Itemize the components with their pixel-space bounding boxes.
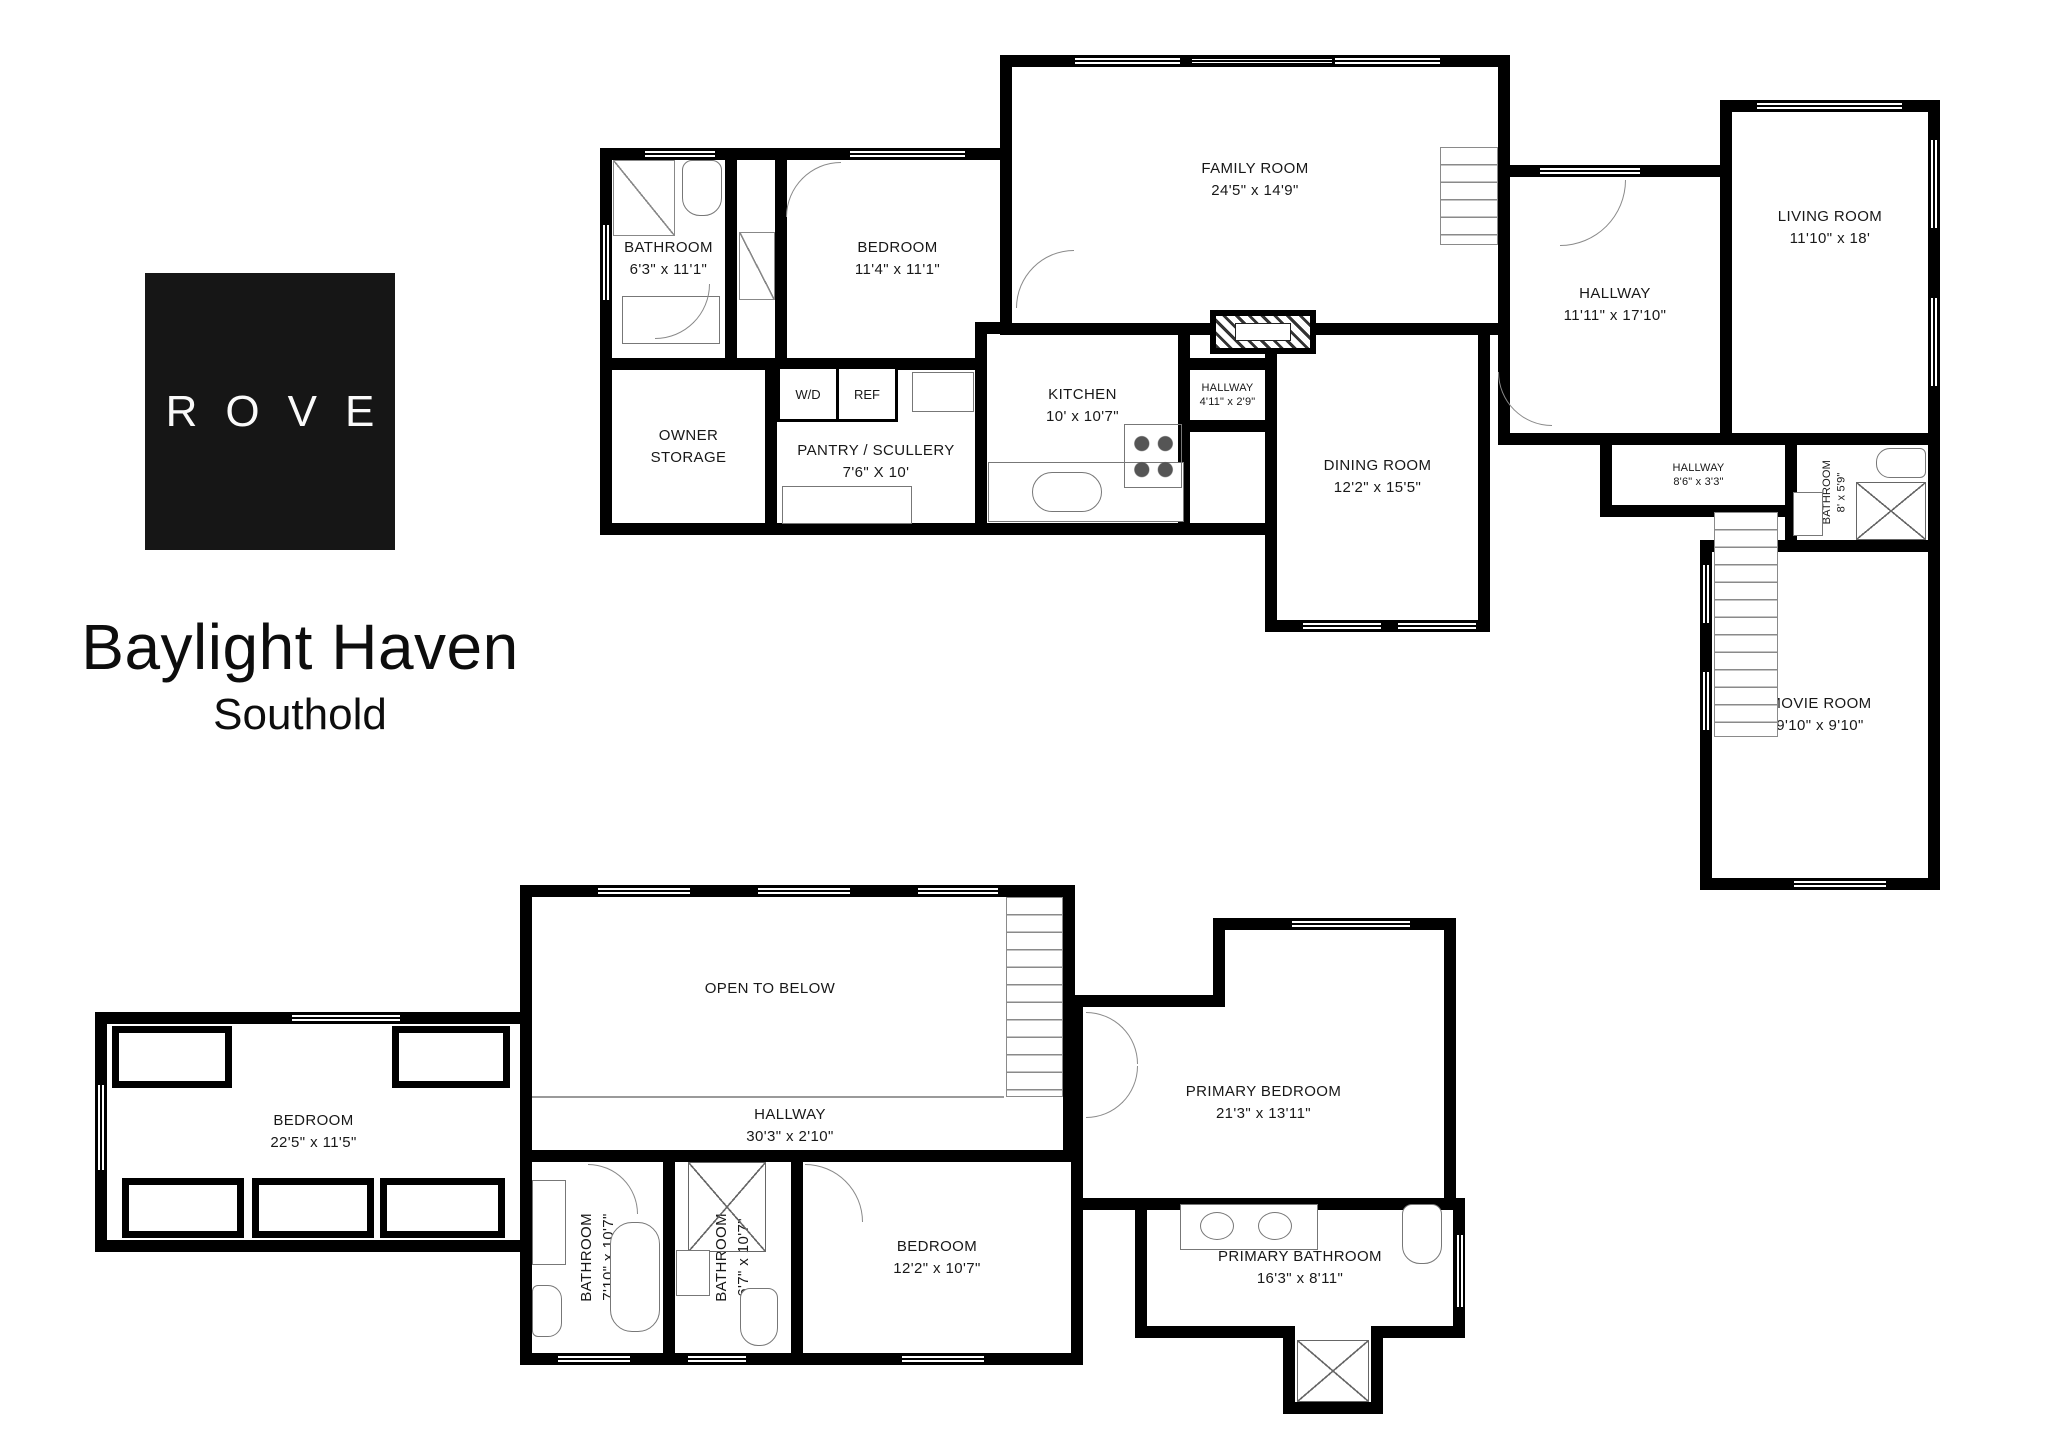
pantry-counter	[912, 372, 974, 412]
room-dims: 12'2" x 10'7"	[893, 1258, 980, 1280]
stove	[1124, 424, 1182, 488]
window	[601, 225, 611, 300]
room-label: KITCHEN	[1046, 384, 1119, 406]
sliding-door	[1192, 57, 1332, 65]
property-title: Baylight Haven	[20, 610, 580, 684]
room-label: BATHROOM	[576, 1213, 598, 1302]
toilet-rear-bathroom	[1876, 448, 1926, 478]
staircase-family-room	[1440, 147, 1498, 245]
window	[918, 886, 998, 896]
window	[1701, 672, 1711, 730]
room-label: BEDROOM	[893, 1236, 980, 1258]
property-subtitle: Southold	[20, 690, 580, 740]
washer-dryer-label: W/D	[795, 387, 820, 402]
room-dims: 11'11" x 17'10"	[1564, 305, 1667, 327]
closet-bifold-door	[739, 232, 775, 300]
window	[292, 1013, 400, 1023]
room-label: PRIMARY BEDROOM	[1186, 1081, 1341, 1103]
window	[1701, 565, 1711, 623]
refrigerator-label: REF	[854, 387, 880, 402]
shower-primary-bathroom	[1297, 1340, 1369, 1402]
room-label: BEDROOM	[270, 1110, 356, 1132]
closet-off-hallway	[1178, 420, 1277, 535]
pantry-lower-counter	[782, 486, 912, 524]
room-dims: 21'3" x 13'11"	[1186, 1103, 1341, 1125]
fireplace-firebox	[1235, 323, 1292, 342]
wall-opening	[1225, 995, 1444, 1021]
window	[558, 1354, 630, 1364]
title-block: Baylight Haven Southold	[20, 610, 580, 740]
toilet-bathroom1-2f	[532, 1285, 562, 1337]
window	[598, 886, 690, 896]
closet	[112, 1026, 232, 1088]
open-below-edge	[532, 1096, 1004, 1098]
window	[1335, 56, 1440, 66]
rove-logo-text: ROVE	[138, 387, 403, 437]
rove-logo: ROVE	[145, 273, 395, 550]
toilet-primary-bathroom	[1402, 1204, 1442, 1264]
floorplan-canvas: ROVE Baylight Haven Southold BATHROOM 6'…	[0, 0, 2048, 1448]
closet	[252, 1178, 374, 1238]
staircase-to-second-floor	[1714, 512, 1778, 737]
window	[96, 1085, 106, 1170]
room-dims: 9'10" x 9'10"	[1768, 715, 1871, 737]
room-dims: 6'3" x 11'1"	[624, 259, 713, 281]
room-dims: 11'10" x 18'	[1778, 228, 1882, 250]
room-dims: 7'6" X 10'	[797, 462, 954, 484]
room-dims: 11'4" x 11'1"	[855, 259, 940, 281]
closet	[122, 1178, 244, 1238]
room-label: HALLWAY	[1673, 461, 1725, 475]
sink-bathroom2-2f	[676, 1250, 710, 1296]
room-living: LIVING ROOM 11'10" x 18'	[1720, 100, 1940, 445]
window	[902, 1354, 984, 1364]
room-dims: 24'5" x 14'9"	[1201, 180, 1308, 202]
room-label: DINING ROOM	[1324, 455, 1432, 477]
room-dims: 4'11" x 2'9"	[1200, 395, 1256, 409]
staircase-2f	[1006, 897, 1063, 1097]
shower-bathroom-1f	[613, 160, 675, 236]
room-primary-bedroom: PRIMARY BEDROOM 21'3" x 13'11"	[1071, 995, 1456, 1210]
shower-rear-bathroom	[1856, 482, 1926, 540]
room-label: FAMILY ROOM	[1201, 158, 1308, 180]
room-label: LIVING ROOM	[1778, 206, 1882, 228]
room-label: BEDROOM	[855, 237, 940, 259]
closet	[380, 1178, 505, 1238]
vanity-bathroom1-2f	[532, 1180, 566, 1265]
window	[758, 886, 850, 896]
refrigerator-box: REF	[836, 366, 898, 422]
shower-bathroom2-2f	[688, 1162, 766, 1252]
toilet-bathroom-1f	[682, 160, 722, 216]
room-label: BATHROOM	[624, 237, 713, 259]
room-label: PANTRY / SCULLERY	[797, 440, 954, 462]
room-dims: 22'5" x 11'5"	[270, 1132, 356, 1154]
window	[688, 1354, 746, 1364]
window	[1398, 621, 1476, 631]
closet	[392, 1026, 510, 1088]
room-dims: 8'6" x 3'3"	[1673, 475, 1725, 489]
toilet-bathroom2-2f	[740, 1288, 778, 1346]
room-label: MOVIE ROOM	[1768, 693, 1871, 715]
room-owner-storage: OWNER STORAGE	[600, 358, 777, 535]
fireplace	[1210, 310, 1316, 354]
room-dims: 10' x 10'7"	[1046, 406, 1119, 428]
window	[1303, 621, 1381, 631]
sink-basin	[1200, 1212, 1234, 1240]
hallway-2f-label: HALLWAY 30'3" x 2'10"	[600, 1104, 980, 1148]
bathtub-2f	[610, 1222, 660, 1332]
room-family: FAMILY ROOM 24'5" x 14'9"	[1000, 55, 1510, 335]
room-hallway-rear-1f: HALLWAY 8'6" x 3'3"	[1600, 433, 1797, 517]
room-label: HALLWAY	[1564, 283, 1667, 305]
window	[1540, 166, 1640, 176]
window	[1794, 879, 1886, 889]
sink-basin	[1258, 1212, 1292, 1240]
kitchen-sink	[1032, 472, 1102, 512]
room-dims: 8' x 5'9"	[1835, 460, 1849, 524]
sink-rear-bathroom	[1793, 492, 1823, 536]
window	[1292, 919, 1410, 929]
room-dims: 16'3" x 8'11"	[1218, 1268, 1382, 1290]
window	[850, 149, 965, 159]
washer-dryer-box: W/D	[777, 366, 839, 422]
window	[1929, 140, 1939, 228]
window	[1455, 1235, 1465, 1307]
window	[645, 149, 715, 159]
open-to-below-label: OPEN TO BELOW	[560, 978, 980, 1000]
room-dims: 12'2" x 15'5"	[1324, 477, 1432, 499]
window	[1757, 101, 1902, 111]
window	[1075, 56, 1180, 66]
room-label: OWNER STORAGE	[634, 425, 744, 469]
room-dining: DINING ROOM 12'2" x 15'5"	[1265, 322, 1490, 632]
room-label: HALLWAY	[1200, 381, 1256, 395]
window	[1929, 298, 1939, 386]
